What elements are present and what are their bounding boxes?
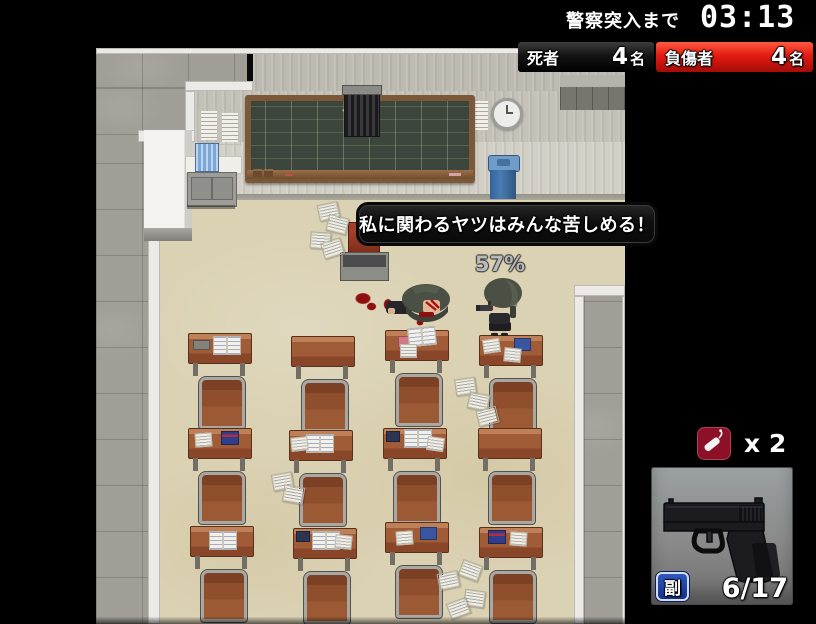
deaths-value: 4 (612, 44, 628, 70)
chair (396, 374, 442, 426)
student-desk (188, 333, 250, 425)
police-timer-value: 03:13 (700, 0, 814, 35)
item-count-label: x 2 (744, 429, 804, 458)
injured-counter: 負傷者 4 名 (656, 42, 813, 72)
deaths-unit: 名 (630, 48, 645, 69)
fallen-student-character (386, 284, 452, 328)
police-timer-label: 警察突入まで (566, 7, 704, 33)
student-desk (289, 430, 351, 522)
ammo-count: 6/17 (722, 573, 788, 604)
student-desk (383, 428, 445, 520)
chair (302, 380, 348, 432)
chair (199, 377, 245, 429)
student-desk (478, 428, 540, 520)
chair (490, 571, 536, 623)
blood-splatter (366, 302, 377, 311)
weapon-panel: 副 6/17 (651, 467, 793, 605)
speech-text: 私に関わるヤツはみんな苦しめる！ (359, 211, 655, 237)
chair (396, 566, 442, 618)
explosive-item-icon (697, 427, 731, 460)
student-desk (293, 528, 355, 620)
scattered-paper (282, 484, 306, 504)
game-screen: { "hud": { "timer": { "label": "警察突入まで",… (0, 0, 816, 624)
chair (199, 472, 245, 524)
hit-chance-label: 57% (470, 252, 530, 276)
deaths-counter: 死者 4 名 (518, 42, 654, 72)
injured-value: 4 (771, 44, 787, 70)
injured-label: 負傷者 (665, 45, 713, 69)
scattered-paper (436, 570, 460, 591)
object-layer (96, 48, 625, 624)
weapon-slot-badge: 副 (656, 572, 689, 601)
player-character (476, 278, 522, 340)
chair (394, 472, 440, 524)
student-desk (188, 428, 250, 520)
speech-bubble: 私に関わるヤツはみんな苦しめる！ (356, 202, 658, 246)
chair (489, 472, 535, 524)
student-desk (190, 526, 252, 618)
student-desk (479, 527, 541, 619)
chair (201, 570, 247, 622)
injured-unit: 名 (789, 48, 804, 69)
slot-badge-text: 副 (664, 574, 681, 599)
chair (300, 474, 346, 526)
student-desk (291, 336, 353, 428)
screen-bottom-shade (96, 617, 625, 624)
chair (490, 379, 536, 431)
student-desk (385, 330, 447, 422)
classroom-map[interactable] (96, 48, 625, 624)
student-desk (385, 522, 447, 614)
deaths-label: 死者 (527, 45, 559, 69)
